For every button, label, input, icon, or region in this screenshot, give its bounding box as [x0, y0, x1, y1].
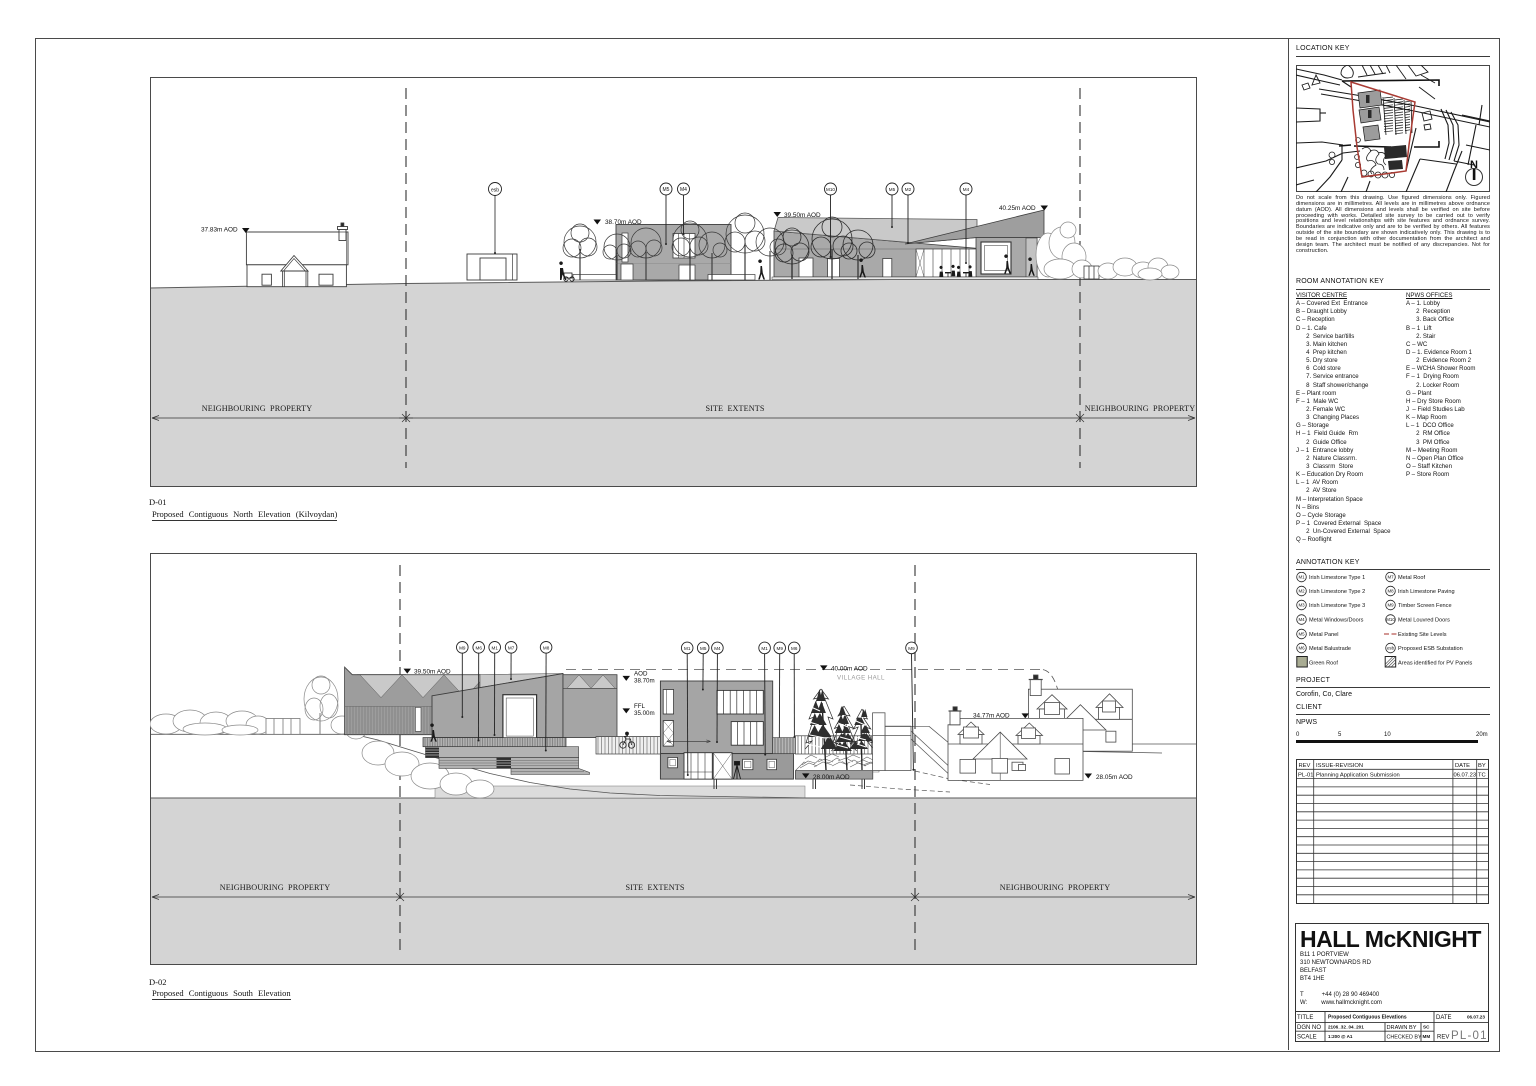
- svg-text:40.00m AOD: 40.00m AOD: [831, 665, 868, 672]
- svg-text:34.77m AOD: 34.77m AOD: [973, 713, 1010, 720]
- svg-text:MM: MM: [1423, 1034, 1431, 1039]
- svg-text:SITE EXTENTS: SITE EXTENTS: [625, 883, 684, 892]
- svg-text:M1: M1: [761, 646, 768, 651]
- svg-text:35.00m: 35.00m: [634, 710, 655, 717]
- svg-text:M6: M6: [791, 646, 798, 651]
- svg-text:NEIGHBOURING PROPERTY: NEIGHBOURING PROPERTY: [1000, 883, 1110, 892]
- svg-text:TC: TC: [1478, 772, 1486, 778]
- svg-text:DRAWN BY: DRAWN BY: [1387, 1025, 1417, 1031]
- svg-text:38.70m AOD: 38.70m AOD: [605, 219, 642, 226]
- svg-text:M8: M8: [1387, 589, 1394, 594]
- svg-text:Metal Windows/Doors: Metal Windows/Doors: [1309, 618, 1364, 624]
- svg-text:SC: SC: [1423, 1025, 1430, 1030]
- svg-text:VILLAGE HALL: VILLAGE HALL: [837, 675, 885, 682]
- svg-text:M9: M9: [1387, 603, 1394, 608]
- svg-text:M4: M4: [714, 646, 721, 651]
- svg-text:Irish Limestone Paving: Irish Limestone Paving: [1398, 589, 1455, 595]
- svg-text:esb: esb: [1387, 646, 1395, 651]
- svg-text:REV: REV: [1437, 1035, 1449, 1041]
- svg-text:M1: M1: [492, 645, 499, 650]
- svg-text:DATE: DATE: [1455, 763, 1470, 769]
- svg-text:M7: M7: [508, 645, 515, 650]
- svg-text:M5: M5: [700, 646, 707, 651]
- svg-text:DATE: DATE: [1436, 1015, 1452, 1021]
- svg-text:M2: M2: [1298, 589, 1305, 594]
- svg-text:06.07.23: 06.07.23: [1467, 1015, 1485, 1020]
- svg-text:37.83m AOD: 37.83m AOD: [201, 227, 238, 234]
- svg-text:39.50m AOD: 39.50m AOD: [414, 669, 451, 676]
- svg-text:esb: esb: [491, 187, 499, 193]
- svg-text:M10: M10: [826, 187, 835, 192]
- svg-text:M5: M5: [663, 187, 670, 193]
- svg-text:M7: M7: [1387, 575, 1394, 580]
- svg-text:NEIGHBOURING PROPERTY: NEIGHBOURING PROPERTY: [1085, 404, 1195, 413]
- svg-text:M5: M5: [1298, 632, 1305, 637]
- svg-text:ISSUE-REVISION: ISSUE-REVISION: [1316, 763, 1363, 769]
- svg-text:M5: M5: [889, 187, 896, 192]
- svg-text:M4: M4: [963, 187, 970, 192]
- svg-text:M1: M1: [684, 646, 691, 651]
- svg-text:1:200 @ A1: 1:200 @ A1: [1328, 1034, 1353, 1039]
- svg-text:M3: M3: [1298, 603, 1305, 608]
- svg-text:SITE EXTENTS: SITE EXTENTS: [705, 404, 764, 413]
- svg-text:Proposed Contiguous Elevations: Proposed Contiguous Elevations: [1328, 1015, 1407, 1021]
- svg-text:SCALE: SCALE: [1297, 1035, 1317, 1041]
- svg-text:Planning Application Submissio: Planning Application Submission: [1316, 772, 1400, 778]
- svg-text:Irish Limestone Type 1: Irish Limestone Type 1: [1309, 575, 1365, 581]
- svg-text:Metal Louvred Doors: Metal Louvred Doors: [1398, 618, 1450, 624]
- svg-text:REV: REV: [1299, 763, 1311, 769]
- svg-text:M6: M6: [1298, 646, 1305, 651]
- svg-text:CHECKED BY: CHECKED BY: [1387, 1035, 1422, 1041]
- svg-text:Existing Site Levels: Existing Site Levels: [1398, 632, 1447, 638]
- svg-text:38.70m: 38.70m: [634, 678, 655, 685]
- svg-text:M4: M4: [680, 187, 687, 193]
- svg-text:Irish Limestone Type 3: Irish Limestone Type 3: [1309, 603, 1365, 609]
- svg-text:Timber Screen Fence: Timber Screen Fence: [1398, 603, 1452, 609]
- svg-text:FFL: FFL: [634, 703, 646, 710]
- svg-text:BY: BY: [1478, 763, 1486, 769]
- svg-text:2106_32_04_201: 2106_32_04_201: [1328, 1025, 1364, 1030]
- svg-text:M9: M9: [459, 645, 466, 650]
- svg-text:Metal Balustrade: Metal Balustrade: [1309, 646, 1351, 652]
- svg-text:M2: M2: [905, 187, 912, 192]
- svg-text:TITLE: TITLE: [1297, 1015, 1313, 1021]
- svg-text:Proposed ESB Substation: Proposed ESB Substation: [1398, 646, 1463, 652]
- svg-text:M8: M8: [543, 645, 550, 650]
- svg-text:40.25m AOD: 40.25m AOD: [999, 205, 1036, 212]
- svg-text:28.05m AOD: 28.05m AOD: [1096, 774, 1133, 781]
- svg-text:M10: M10: [1386, 617, 1395, 622]
- svg-text:PL-01: PL-01: [1451, 1030, 1488, 1042]
- svg-text:Irish Limestone Type 2: Irish Limestone Type 2: [1309, 589, 1365, 595]
- svg-text:06.07.23: 06.07.23: [1454, 772, 1477, 778]
- svg-text:M9: M9: [777, 646, 784, 651]
- svg-text:Metal Panel: Metal Panel: [1309, 632, 1339, 638]
- svg-text:AOD: AOD: [634, 671, 648, 678]
- svg-text:NEIGHBOURING PROPERTY: NEIGHBOURING PROPERTY: [220, 883, 330, 892]
- svg-text:M1: M1: [1298, 575, 1305, 580]
- svg-text:28.00m AOD: 28.00m AOD: [813, 774, 850, 781]
- svg-text:Metal Roof: Metal Roof: [1398, 575, 1425, 581]
- svg-text:M9: M9: [908, 646, 915, 651]
- svg-text:DGN NO: DGN NO: [1297, 1025, 1321, 1031]
- svg-text:PL-01: PL-01: [1298, 772, 1313, 778]
- svg-text:Areas identified for PV Panels: Areas identified for PV Panels: [1398, 661, 1473, 667]
- svg-text:39.50m AOD: 39.50m AOD: [784, 212, 821, 219]
- svg-text:M4: M4: [1298, 617, 1305, 622]
- svg-text:Green Roof: Green Roof: [1309, 661, 1338, 667]
- svg-text:NEIGHBOURING PROPERTY: NEIGHBOURING PROPERTY: [202, 404, 312, 413]
- svg-text:M6: M6: [476, 645, 483, 650]
